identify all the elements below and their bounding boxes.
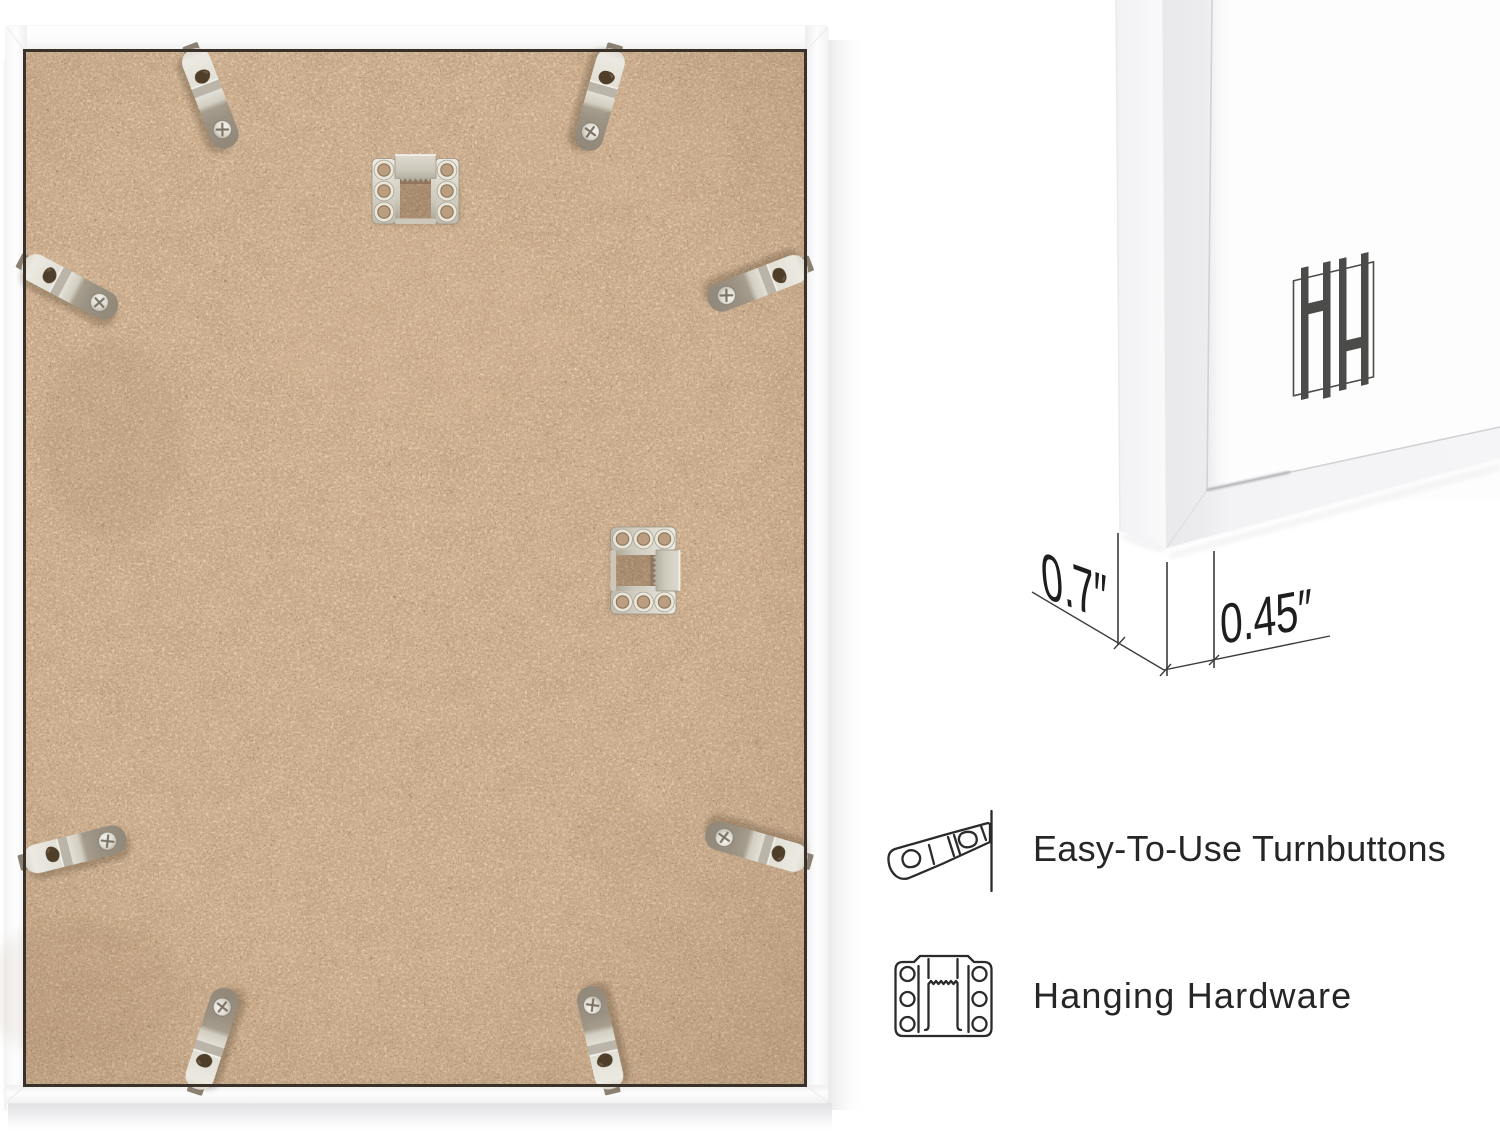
- svg-text:Easy-To-Use Turnbuttons: Easy-To-Use Turnbuttons: [1033, 828, 1446, 869]
- svg-text:Hanging Hardware: Hanging Hardware: [1033, 975, 1352, 1016]
